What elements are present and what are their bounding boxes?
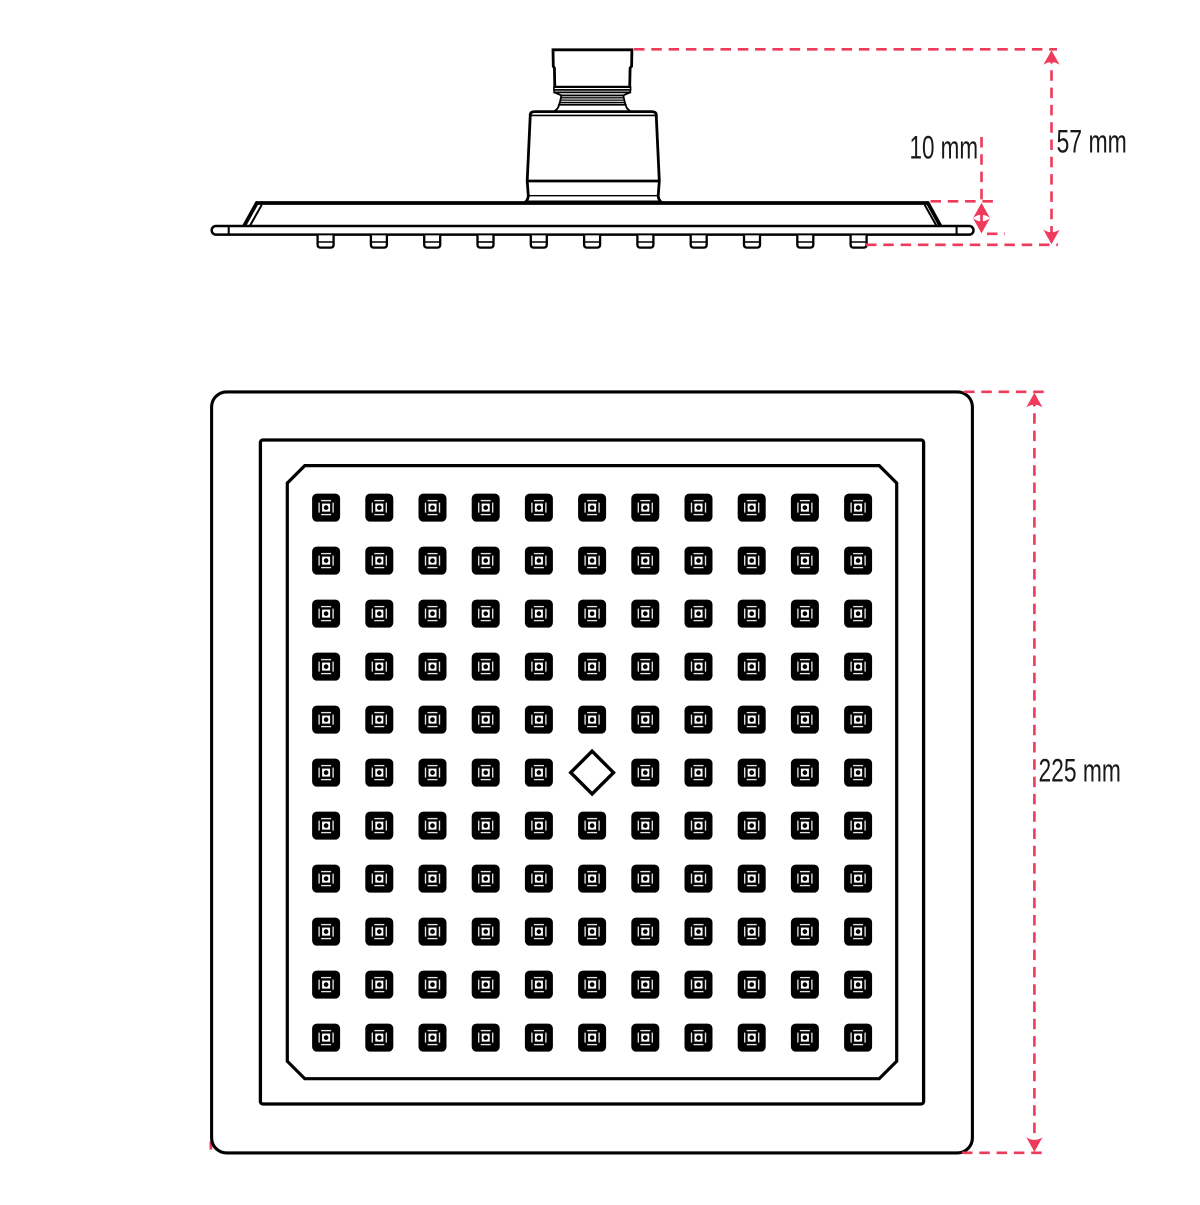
svg-text:10 mm: 10 mm	[910, 129, 979, 165]
svg-text:57 mm: 57 mm	[1057, 124, 1127, 160]
svg-text:225 mm: 225 mm	[1039, 753, 1121, 789]
